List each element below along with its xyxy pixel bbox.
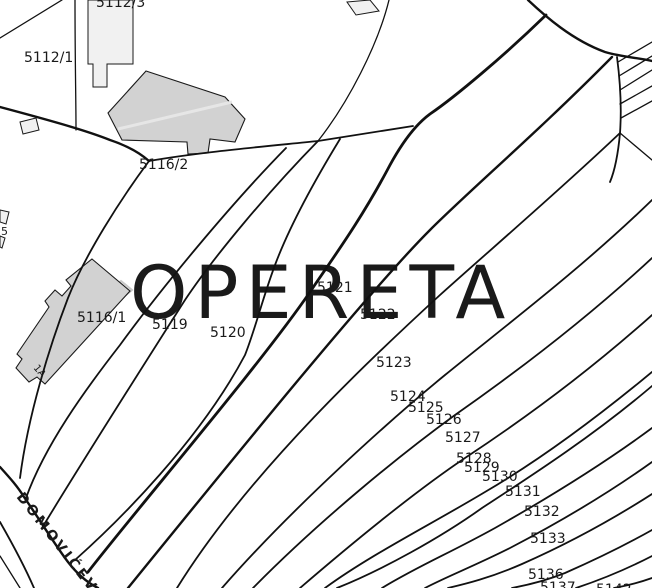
- parcel-label-5123: 5123: [376, 355, 412, 371]
- parcel-label-5112-1: 5112/1: [24, 50, 73, 66]
- parcel-label-5142: 5142: [596, 582, 632, 588]
- parcel-label-5133: 5133: [530, 531, 566, 547]
- parcel-label-5132: 5132: [524, 504, 560, 520]
- parcel-label-5119: 5119: [152, 317, 188, 333]
- parcel-label-5126: 5126: [426, 412, 462, 428]
- cadastral-map: OPERETA: [0, 0, 652, 588]
- parcel-label-5122: 5122: [360, 307, 396, 323]
- parcel-label-5127: 5127: [445, 430, 481, 446]
- parcel-label-5116-1: 5116/1: [77, 310, 126, 326]
- parcel-label-5131: 5131: [505, 484, 541, 500]
- cadastral-map-viewport[interactable]: OPERETA: [0, 0, 652, 588]
- parcel-label-5130: 5130: [482, 469, 518, 485]
- parcel-label-5112-3: 5112/3: [96, 0, 145, 11]
- parcel-label-5120: 5120: [210, 325, 246, 341]
- parcel-label-5121: 5121: [317, 280, 353, 296]
- parcel-label-5116-2: 5116/2: [139, 157, 188, 173]
- parcel-label-5137: 5137: [540, 580, 576, 588]
- parcel-label-5: 5: [1, 225, 8, 238]
